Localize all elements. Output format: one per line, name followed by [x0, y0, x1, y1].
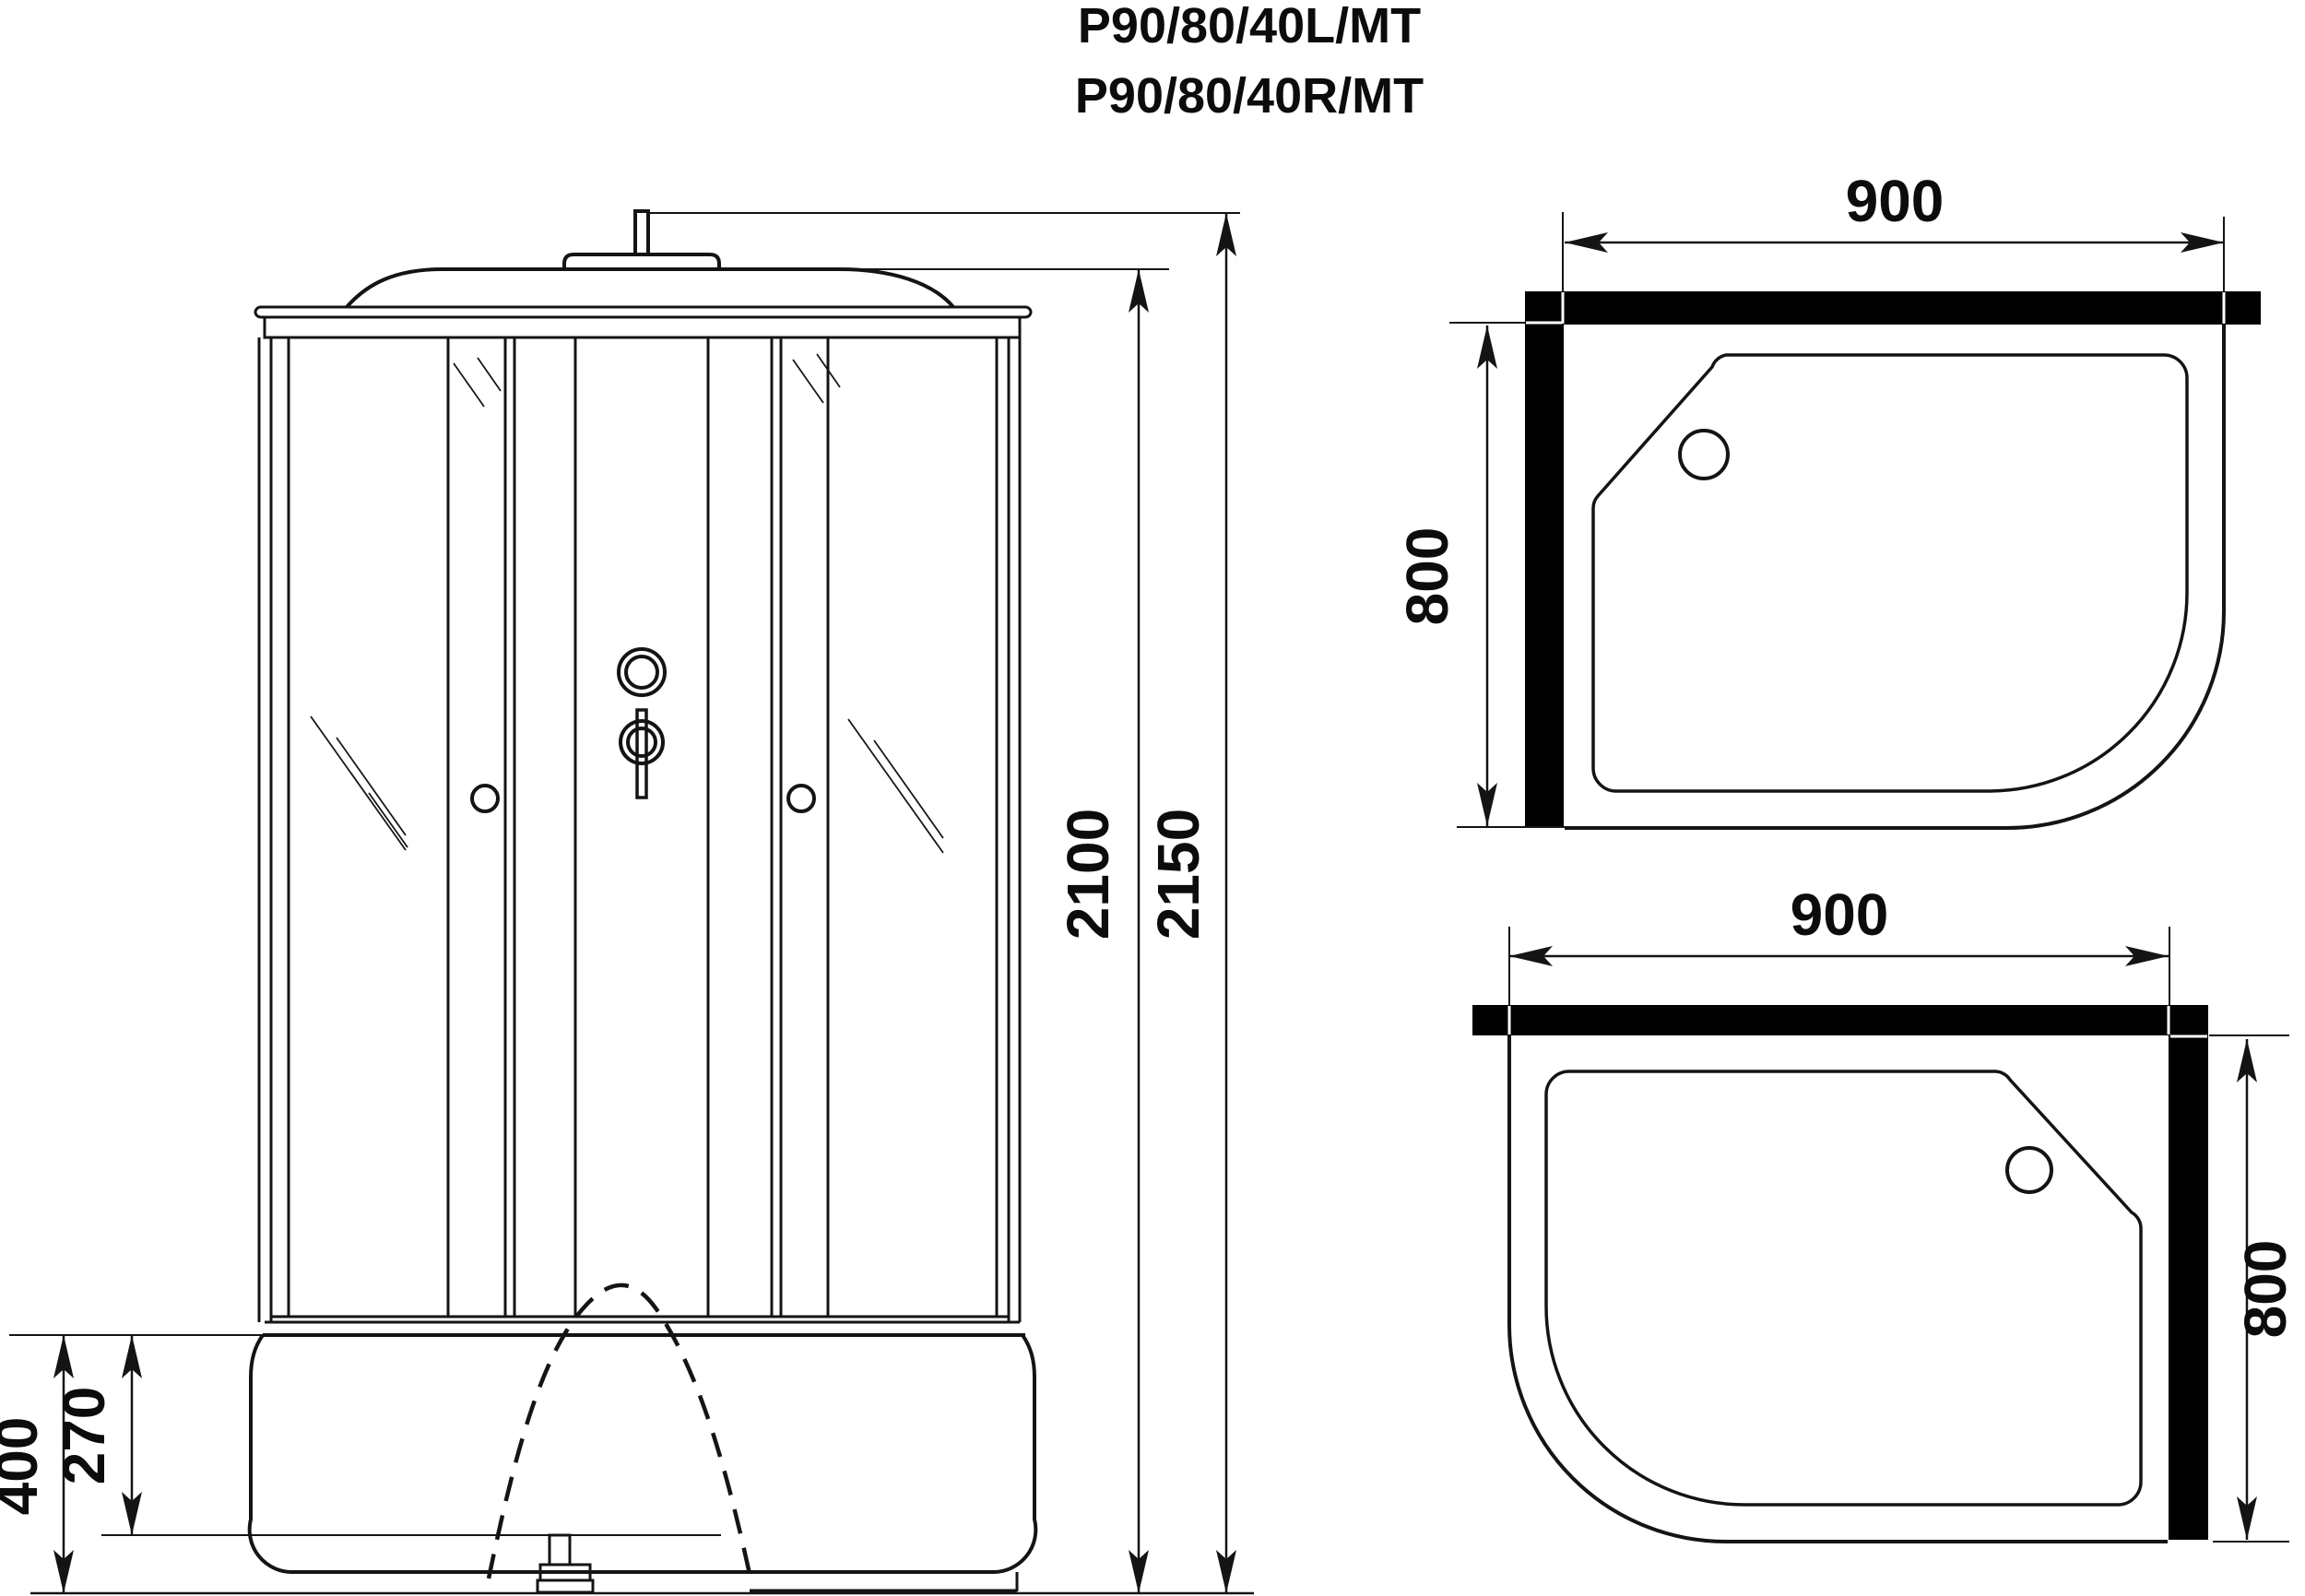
- dim-label-800: 800: [2232, 1240, 2299, 1339]
- dim-label-2100: 2100: [1055, 809, 1121, 940]
- mixer-ring-inner: [626, 656, 657, 688]
- plan-view-right-version: 900 800: [1472, 881, 2299, 1542]
- door-knob-left: [472, 786, 498, 811]
- model-code-left: P90/80/40L/MT: [1078, 0, 1421, 53]
- roof-cap: [564, 254, 719, 269]
- shine-mark: [874, 740, 943, 838]
- dim-label-900: 900: [1791, 881, 1889, 948]
- shine-mark: [337, 738, 406, 835]
- dim-label-2150: 2150: [1145, 809, 1212, 940]
- dim-label-270: 270: [51, 1387, 117, 1485]
- roof-dome: [347, 269, 953, 307]
- technical-drawing-page: P90/80/40L/MT P90/80/40R/MT: [0, 0, 2305, 1596]
- shine-mark: [369, 793, 408, 847]
- wall-back: [1472, 1005, 2208, 1035]
- handle-lever: [637, 710, 646, 798]
- drawing-title: P90/80/40L/MT P90/80/40R/MT: [1075, 0, 1424, 124]
- cornice-lip: [255, 307, 1031, 317]
- mixer-handle-set: [619, 649, 665, 798]
- dimension-2150: 2150: [1145, 213, 1236, 1593]
- dimension-800-right-version: 800: [2209, 1035, 2299, 1542]
- front-view: [250, 211, 1036, 1592]
- cornice-fascia: [265, 317, 1020, 337]
- dim-label-800: 800: [1394, 527, 1460, 626]
- shine-mark: [793, 360, 823, 403]
- shower-tray-front: [250, 1285, 1036, 1592]
- shine-mark: [478, 358, 501, 391]
- wall-side-left: [1525, 291, 1564, 826]
- drain-foot-stem: [550, 1535, 570, 1565]
- tray-outer-edge: [1509, 1035, 2168, 1542]
- glass-shine-marks: [311, 354, 943, 853]
- dimension-2100: 2100: [1055, 269, 1149, 1593]
- shine-mark: [311, 716, 406, 850]
- shine-mark: [848, 719, 943, 853]
- handle-ring-inner: [628, 728, 656, 756]
- tray-apron-outline: [250, 1335, 1036, 1572]
- drain-hole: [2007, 1148, 2051, 1192]
- model-code-right: P90/80/40R/MT: [1075, 68, 1424, 124]
- tray-outer-edge: [1565, 325, 2224, 828]
- dimension-900-right-version: 900: [1509, 881, 2169, 1005]
- wall-side-right: [2169, 1005, 2208, 1540]
- roof-vent-pipe: [635, 211, 648, 254]
- glass-panels: [259, 337, 1020, 1322]
- dimension-900-left-version: 900: [1563, 168, 2224, 291]
- dim-label-400: 400: [0, 1417, 50, 1516]
- basin-outline: [1593, 355, 2187, 791]
- dim-label-900: 900: [1846, 168, 1944, 234]
- plan-view-left-version: 900 800: [1394, 168, 2261, 828]
- door-knob-right: [788, 786, 814, 811]
- drain-foot: [538, 1535, 593, 1592]
- drain-foot-base: [538, 1580, 593, 1592]
- front-view-dimensions: 2150 2100 400 270: [0, 213, 1254, 1593]
- shine-mark: [454, 363, 484, 407]
- shower-cabin-drawing: P90/80/40L/MT P90/80/40R/MT: [0, 0, 2305, 1596]
- wall-back: [1525, 291, 2261, 325]
- basin-outline: [1546, 1071, 2141, 1505]
- drain-hole: [1680, 431, 1728, 479]
